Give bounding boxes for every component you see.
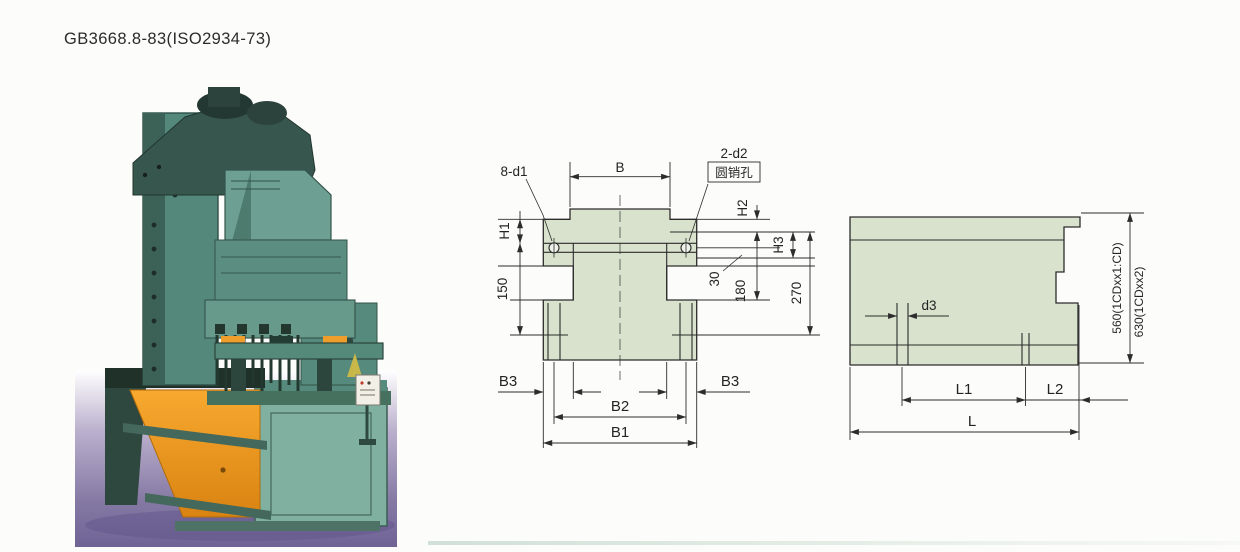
- standard-code-title: GB3668.8-83(ISO2934-73): [64, 30, 271, 49]
- table-edge-artifact: [428, 541, 1240, 545]
- dim-label-150: 150: [495, 278, 510, 301]
- dim-label-B1: B1: [611, 424, 629, 441]
- dim-label-B2: B2: [611, 398, 629, 415]
- bed-side-profile: [850, 217, 1080, 365]
- machine-ram: [205, 300, 355, 338]
- machine-photo: [75, 75, 397, 547]
- dim-label-630: 630(1CDxx2): [1132, 267, 1146, 338]
- dim-label-H2: H2: [735, 199, 750, 216]
- dim-label-L2: L2: [1047, 381, 1064, 398]
- side-view-drawing: d3 L1 L2 L 560(1CDxx1:CD) 630(1CDxx2): [845, 190, 1155, 460]
- dim-label-B: B: [615, 160, 624, 175]
- dim-label-B3-left: B3: [499, 373, 517, 390]
- dim-label-H3: H3: [771, 236, 786, 253]
- dim-label-8-d1: 8-d1: [500, 164, 527, 179]
- dim-label-H1: H1: [497, 222, 512, 239]
- front-view-drawing: B 8-d1 2-d2 圆销孔 H1 150 H2 H3 30 180 270 …: [480, 145, 840, 460]
- head-motor-2: [247, 101, 287, 125]
- dim-label-d3: d3: [921, 298, 936, 313]
- catalog-page: GB3668.8-83(ISO2934-73): [0, 0, 1240, 552]
- dim-label-30: 30: [707, 271, 722, 286]
- dim-label-L1: L1: [956, 381, 973, 398]
- dim-label-B3-right: B3: [721, 373, 739, 390]
- leader-30: [723, 255, 742, 271]
- pin-hole-note: 圆销孔: [715, 166, 753, 180]
- dim-label-270: 270: [789, 282, 804, 305]
- dim-label-180: 180: [733, 280, 748, 303]
- dim-label-2-d2: 2-d2: [720, 146, 747, 161]
- dim-label-560: 560(1CDxx1:CD): [1110, 242, 1124, 333]
- dim-label-L: L: [968, 413, 976, 430]
